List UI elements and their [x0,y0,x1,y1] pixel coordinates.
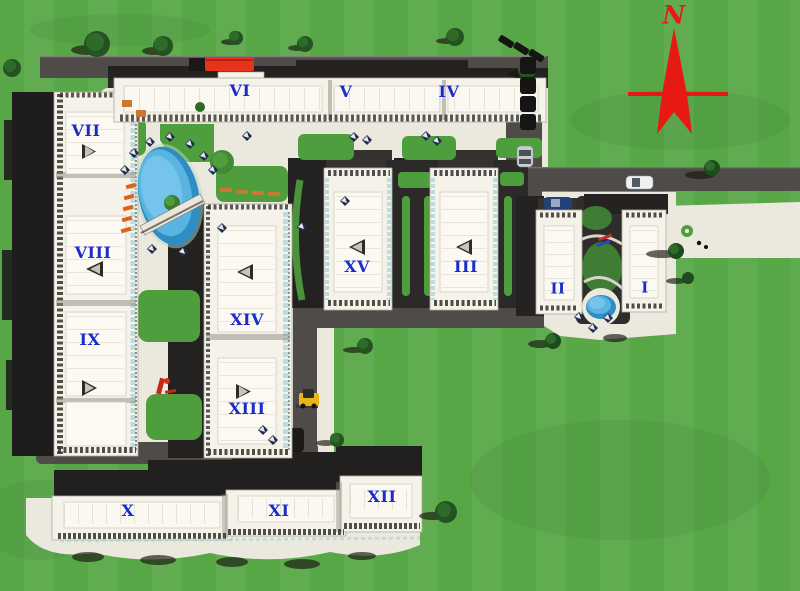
building-label-iv: IV [439,84,460,100]
building-label-viii: VIII [75,245,112,261]
building-label-i: I [641,281,649,296]
building-label-vii: VII [72,123,101,139]
white-car [626,176,653,189]
building-label-x: X [122,503,135,519]
building-label-iii: III [454,259,478,275]
building-label-xiv: XIV [230,312,264,328]
blue-car [544,197,572,209]
building-xv [324,168,392,310]
building-label-xv: XV [344,259,370,275]
west-building-shadow [12,92,58,456]
building-block-xiv-xiii [204,204,292,458]
building-iii [430,168,498,310]
building-label-ix: IX [80,332,101,348]
building-i [622,210,666,312]
site-plan: VII VIII IX VI V IV XIV XIII XV III II I… [0,0,800,591]
building-label-xiii: XIII [229,401,266,417]
building-label-ii: II [550,282,565,297]
building-ii [536,210,582,314]
building-block-vi-v-iv [114,72,546,122]
site-plan-canvas [0,0,800,591]
north-label: N [662,3,685,28]
building-block-vii-viii-ix [54,92,138,456]
building-label-v: V [340,84,353,100]
building-label-xii: XII [368,489,397,505]
building-label-vi: VI [230,83,251,99]
building-label-xi: XI [269,503,290,519]
silver-car [517,146,533,167]
red-bus [189,57,254,71]
small-pool [582,288,620,326]
